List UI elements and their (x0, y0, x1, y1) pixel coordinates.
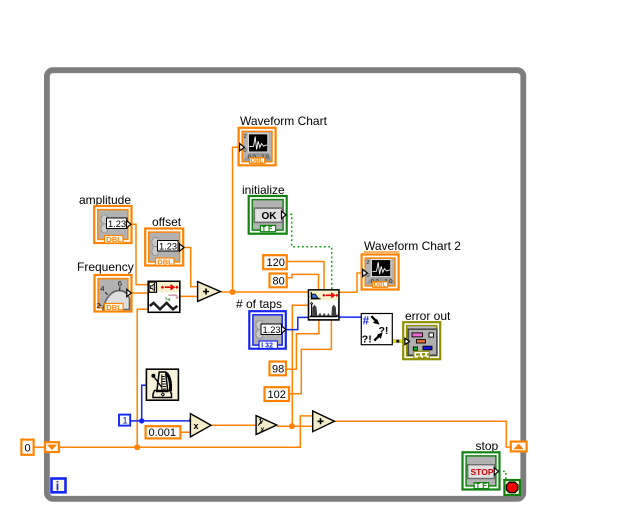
svg-text:DBL: DBL (251, 159, 264, 165)
svg-text:1.23: 1.23 (263, 325, 281, 335)
svg-text:OK: OK (262, 211, 278, 222)
svg-text:4: 4 (100, 284, 104, 293)
svg-text:Waveform Chart: Waveform Chart (240, 114, 328, 128)
svg-text:102: 102 (268, 389, 286, 401)
svg-text:98: 98 (272, 363, 284, 375)
svg-text:offset: offset (152, 215, 182, 229)
svg-text:Waveform Chart 2: Waveform Chart 2 (364, 239, 461, 253)
svg-text:80: 80 (273, 275, 285, 287)
svg-text:?!: ?! (362, 334, 372, 346)
svg-text:stop: stop (476, 439, 499, 453)
svg-text:Frequency: Frequency (77, 260, 134, 274)
svg-text:DBL: DBL (374, 283, 387, 289)
svg-text:1.23: 1.23 (159, 241, 177, 251)
svg-text:STOP: STOP (471, 467, 494, 477)
svg-text:1.23: 1.23 (108, 219, 126, 229)
svg-text:i: i (56, 479, 59, 493)
svg-text:DBL: DBL (106, 235, 122, 244)
svg-text:0: 0 (25, 443, 31, 455)
svg-text:0: 0 (366, 273, 369, 279)
svg-text:2: 2 (366, 260, 369, 266)
svg-text:1: 1 (122, 416, 127, 427)
svg-text:x: x (261, 427, 265, 434)
svg-text:T F: T F (262, 226, 273, 233)
svg-text:I 32: I 32 (261, 343, 273, 350)
svg-text:DBL: DBL (106, 303, 122, 312)
svg-text:DBL: DBL (157, 258, 173, 267)
svg-text:T F: T F (476, 481, 488, 490)
svg-text:0.001: 0.001 (149, 427, 177, 439)
svg-text:6: 6 (118, 279, 122, 288)
svg-text:initialize: initialize (242, 183, 285, 197)
svg-text:0: 0 (243, 148, 246, 154)
svg-text:120: 120 (267, 257, 285, 269)
svg-text:amplitude: amplitude (79, 193, 131, 207)
svg-text:# of taps: # of taps (236, 297, 282, 311)
svg-text:2: 2 (243, 134, 246, 140)
svg-text:x: x (194, 421, 199, 431)
svg-text:2: 2 (96, 301, 100, 310)
svg-text:#: # (363, 316, 370, 328)
svg-text:error out: error out (405, 309, 451, 323)
